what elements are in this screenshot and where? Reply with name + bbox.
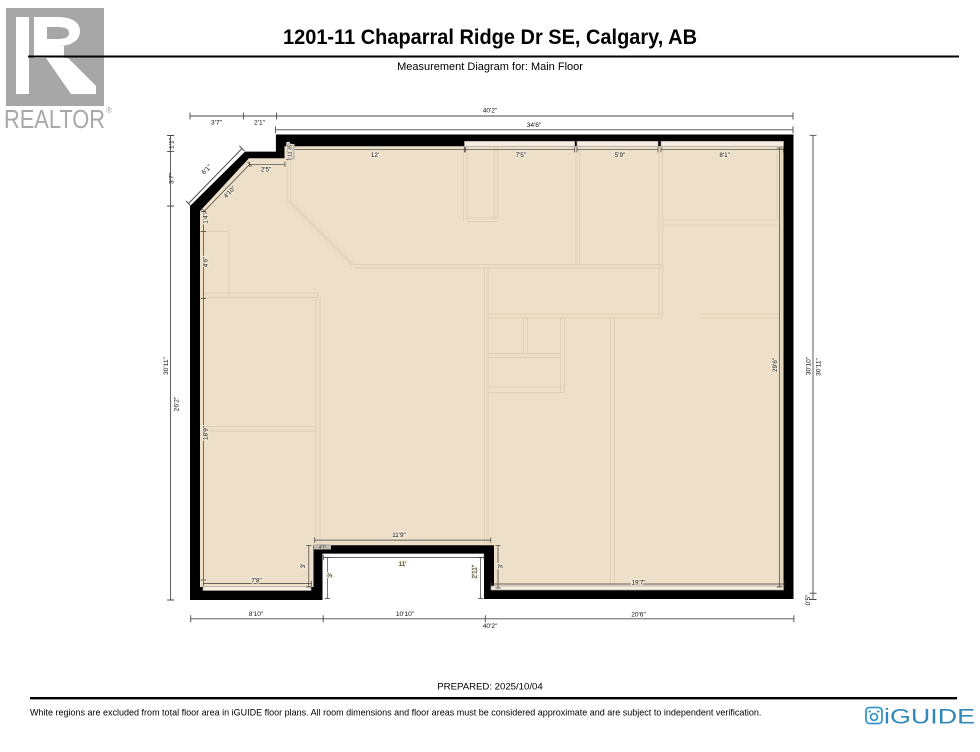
svg-text:White regions are excluded fro: White regions are excluded from total fl… [30,708,761,718]
svg-text:PREPARED: 2025/10/04: PREPARED: 2025/10/04 [437,682,543,693]
svg-text:iGUIDE: iGUIDE [884,706,975,729]
